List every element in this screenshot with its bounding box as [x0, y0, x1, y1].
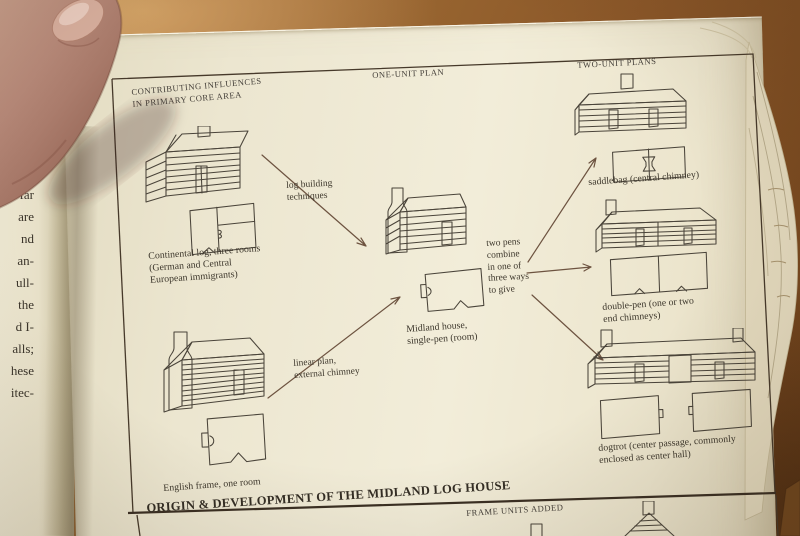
saddlebag-house-drawing [573, 72, 688, 140]
caption-double-pen: double-pen (one or two end chimneys) [602, 296, 695, 327]
double-pen-floor-plan-drawing [607, 250, 711, 300]
label-contributing-influences: CONTRIBUTING INFLUENCES IN PRIMARY CORE … [131, 76, 263, 110]
label-two-pens-combine: two pens combine in one of three ways to… [486, 237, 530, 298]
partial-roof-house-drawing [622, 501, 676, 536]
english-floor-plan-drawing [199, 409, 271, 473]
label-frame-units-added: FRAME UNITS ADDED [466, 502, 564, 520]
dogtrot-house-drawing [583, 328, 758, 396]
caption-english: English frame, one room [163, 476, 261, 495]
label-two-unit-plans: TWO-UNIT PLANS [577, 56, 657, 72]
caption-midland: Midland house, single-pen (room) [406, 319, 478, 348]
caption-saddlebag: saddlebag (central chimney) [588, 169, 700, 189]
label-one-unit-plan: ONE-UNIT PLAN [372, 67, 444, 82]
caption-continental: Continental log, three rooms (German and… [148, 243, 262, 287]
partial-chimney-drawing [528, 521, 546, 536]
book-photo-scene: ir ve. on far are nd an- ull- the d I- a… [0, 0, 800, 536]
midland-floor-plan-drawing [419, 263, 490, 316]
figure-content: CONTRIBUTING INFLUENCES IN PRIMARY CORE … [0, 0, 800, 536]
midland-house-drawing [372, 186, 477, 264]
label-linear-plan: linear plan, external chimney [293, 354, 360, 382]
continental-log-house-drawing [136, 126, 256, 204]
double-pen-house-drawing [592, 198, 722, 258]
label-log-building-techniques: log building techniques [286, 179, 333, 205]
english-frame-house-drawing [152, 330, 270, 422]
